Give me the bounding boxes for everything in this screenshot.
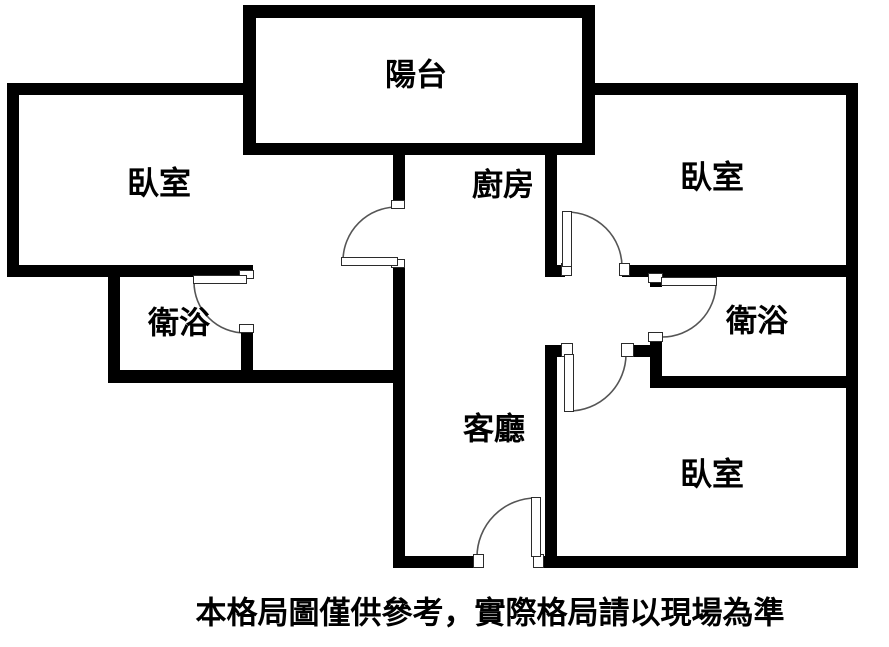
room-label-bedroom-left: 臥室 — [127, 167, 191, 199]
room-label-kitchen: 廚房 — [472, 171, 534, 202]
room-label-bedroom-bottom-right: 臥室 — [680, 458, 744, 490]
door-leaf-bathroom-left — [193, 275, 247, 284]
door-jamb — [473, 554, 484, 568]
door-jamb — [619, 263, 630, 276]
door-jamb — [621, 343, 634, 357]
wall-living-right-lower — [545, 345, 557, 568]
wall-bottom-east — [533, 556, 858, 568]
door-jamb — [391, 200, 405, 209]
door-leaf-bedroom-top-right — [562, 211, 572, 267]
disclaimer-caption: 本格局圖僅供參考，實際格局請以現場為準 — [196, 599, 785, 630]
door-leaf-bedroom-bottom-right — [564, 354, 574, 412]
floor-plan: 陽台 臥室 廚房 臥室 衛浴 衛浴 客廳 臥室 本格局圖僅供參考，實際格局請以現… — [0, 0, 889, 647]
room-label-bathroom-right: 衛浴 — [726, 307, 788, 338]
wall-bathroom-right-bottom — [650, 376, 858, 388]
door-arc-entry — [477, 498, 536, 557]
wall-bathroom-left-west — [108, 265, 120, 383]
door-arc-bedroom-bottom-right — [569, 354, 626, 411]
door-arc-bedroom-left — [343, 207, 397, 261]
room-label-living-room: 客廳 — [463, 415, 525, 446]
room-label-balcony: 陽台 — [385, 61, 447, 92]
door-arc-bathroom-right — [662, 283, 716, 337]
wall-bedroom-left-top — [7, 83, 256, 95]
wall-balcony-left — [243, 5, 256, 155]
room-label-bedroom-top-right: 臥室 — [680, 161, 744, 193]
wall-kitchen-door-upper — [393, 143, 405, 205]
wall-kitchen-right — [545, 143, 557, 273]
wall-bathroom-left-bottom — [108, 370, 405, 383]
wall-bottom-west — [393, 556, 479, 568]
room-label-bathroom-left: 衛浴 — [148, 309, 210, 340]
wall-balcony-top — [243, 5, 595, 18]
wall-bedroom-top-right-top — [595, 83, 858, 95]
wall-living-west — [393, 263, 405, 568]
door-jamb — [648, 332, 663, 342]
door-jamb — [239, 324, 254, 333]
wall-balcony-right — [582, 5, 595, 155]
door-leaf-bedroom-left — [341, 257, 398, 266]
door-leaf-bathroom-right — [661, 277, 717, 286]
wall-outer-left — [7, 83, 19, 277]
wall-balcony-bottom — [243, 143, 595, 155]
door-leaf-entry — [531, 497, 541, 557]
door-arc-bedroom-top-right — [567, 212, 622, 267]
wall-outer-east — [846, 83, 858, 568]
